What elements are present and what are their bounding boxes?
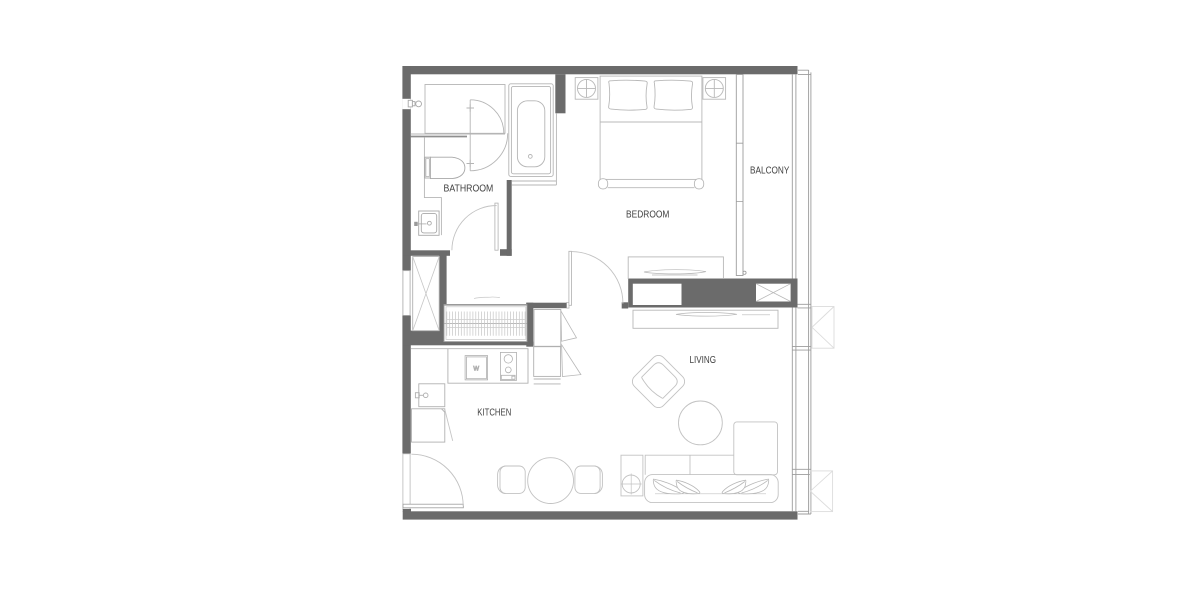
svg-text:BALCONY: BALCONY: [750, 166, 790, 177]
svg-text:BEDROOM: BEDROOM: [626, 210, 669, 221]
svg-text:BATHROOM: BATHROOM: [444, 184, 494, 195]
svg-text:KITCHEN: KITCHEN: [477, 408, 511, 419]
svg-text:LIVING: LIVING: [690, 355, 717, 366]
svg-text:W: W: [473, 366, 479, 372]
